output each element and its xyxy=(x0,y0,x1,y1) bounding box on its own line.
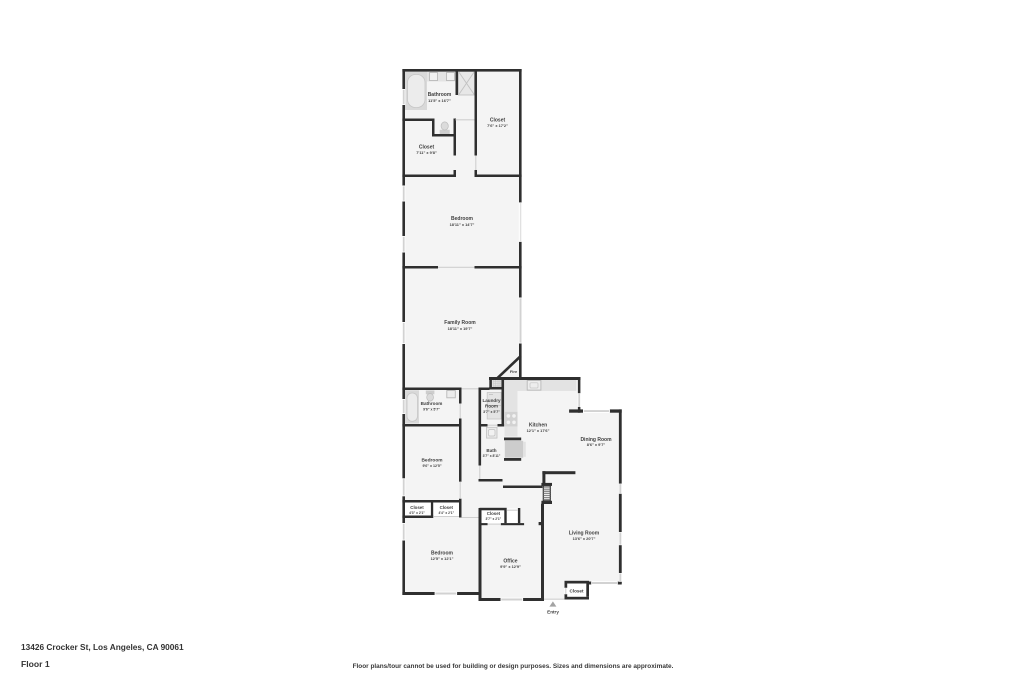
svg-text:18'11" x 19'7": 18'11" x 19'7" xyxy=(448,326,473,331)
svg-text:8'6" x 9'7": 8'6" x 9'7" xyxy=(587,442,606,447)
svg-text:7'11" x 9'8": 7'11" x 9'8" xyxy=(416,150,437,155)
svg-text:Laundry: Laundry xyxy=(482,398,501,403)
svg-text:Closet: Closet xyxy=(569,589,584,594)
svg-text:3'7" x 2'1": 3'7" x 2'1" xyxy=(486,517,502,521)
svg-text:13'6" x 20'7": 13'6" x 20'7" xyxy=(573,536,596,541)
svg-text:9'6" x 12'5": 9'6" x 12'5" xyxy=(422,464,441,468)
svg-text:Room: Room xyxy=(485,404,498,409)
svg-text:9'9" x 12'9": 9'9" x 12'9" xyxy=(500,564,521,569)
svg-text:9'6" x 5'7": 9'6" x 5'7" xyxy=(423,407,440,411)
svg-text:Bathroom: Bathroom xyxy=(421,401,443,406)
svg-text:12'1" x 17'6": 12'1" x 17'6" xyxy=(527,428,550,433)
svg-text:Bath: Bath xyxy=(486,448,496,453)
svg-text:Closet: Closet xyxy=(487,511,501,516)
svg-text:Entry: Entry xyxy=(547,610,559,615)
svg-text:12'5" x 12'1": 12'5" x 12'1" xyxy=(431,556,454,561)
svg-text:7'6" x 17'2": 7'6" x 17'2" xyxy=(487,123,508,128)
svg-text:Bedroom: Bedroom xyxy=(421,457,442,463)
svg-text:4'4" x 2'1": 4'4" x 2'1" xyxy=(438,511,454,515)
svg-text:18'11" x 14'7": 18'11" x 14'7" xyxy=(450,222,475,227)
svg-text:11'5" x 16'7": 11'5" x 16'7" xyxy=(428,98,451,103)
svg-text:3'7" x 8'11": 3'7" x 8'11" xyxy=(483,454,501,458)
svg-text:Closet: Closet xyxy=(440,505,454,510)
svg-text:3'7" x 5'7": 3'7" x 5'7" xyxy=(483,410,500,414)
svg-text:4'3" x 2'1": 4'3" x 2'1" xyxy=(409,511,425,515)
svg-text:Closet: Closet xyxy=(410,505,424,510)
svg-text:Fire: Fire xyxy=(510,369,518,374)
